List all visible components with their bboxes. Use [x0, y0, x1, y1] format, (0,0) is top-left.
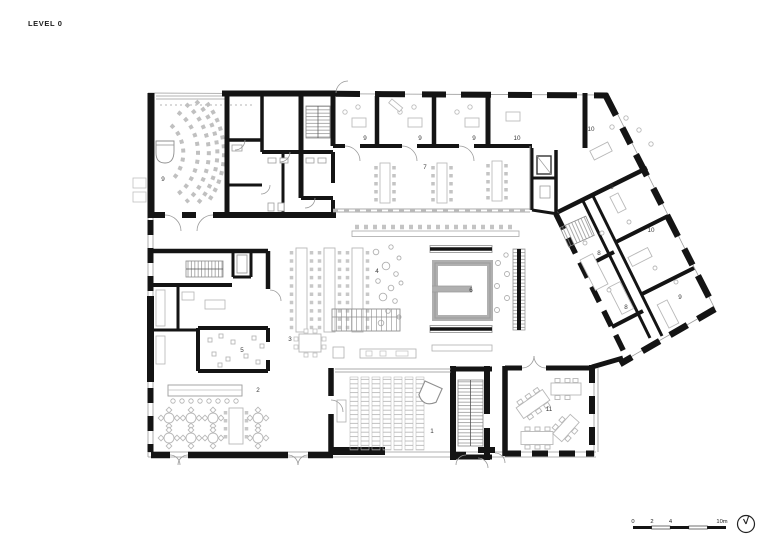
- room-label: 9: [678, 294, 682, 301]
- scale-label-2: 2: [650, 519, 653, 525]
- kitchen-block: [150, 251, 281, 371]
- floor-plan-drawing: 9 9 9 9 10 10 7 9 10 8 8 9 4 6 3 5 2 1 1…: [0, 0, 780, 551]
- room-label: 4: [375, 268, 379, 275]
- room-label: 6: [469, 287, 473, 294]
- room-label: 7: [423, 164, 427, 171]
- north-arrow-icon: [738, 516, 755, 533]
- room-label: 10: [513, 135, 521, 142]
- entrance-wc-block: [227, 81, 348, 218]
- room-label: 9: [161, 176, 165, 183]
- room-label: 5: [240, 347, 244, 354]
- room-label: 9: [610, 184, 614, 191]
- seminar-room-7: [333, 146, 530, 212]
- page-title: LEVEL 0: [28, 19, 63, 28]
- scale-label-4: 4: [669, 519, 673, 525]
- room-label: 9: [472, 135, 476, 142]
- north-classrooms: [333, 93, 585, 161]
- scale-label-0: 0: [631, 519, 634, 525]
- music-room: [133, 101, 336, 231]
- room-label: 9: [418, 135, 422, 142]
- room-label: 3: [288, 336, 292, 343]
- scale-bar: 0 2 4 10m: [631, 519, 727, 529]
- floor-plan-page: LEVEL 0: [0, 0, 780, 551]
- central-hall: [292, 227, 526, 358]
- room-label: 2: [256, 387, 260, 394]
- room-label: 8: [624, 304, 628, 311]
- room-label: 9: [363, 135, 367, 142]
- room-label: 1: [430, 428, 434, 435]
- scale-label-10m: 10m: [716, 519, 727, 525]
- room-label: 11: [546, 406, 553, 413]
- room-label: 10: [587, 126, 595, 133]
- room-label: 8: [597, 250, 601, 257]
- room-label: 10: [647, 227, 655, 234]
